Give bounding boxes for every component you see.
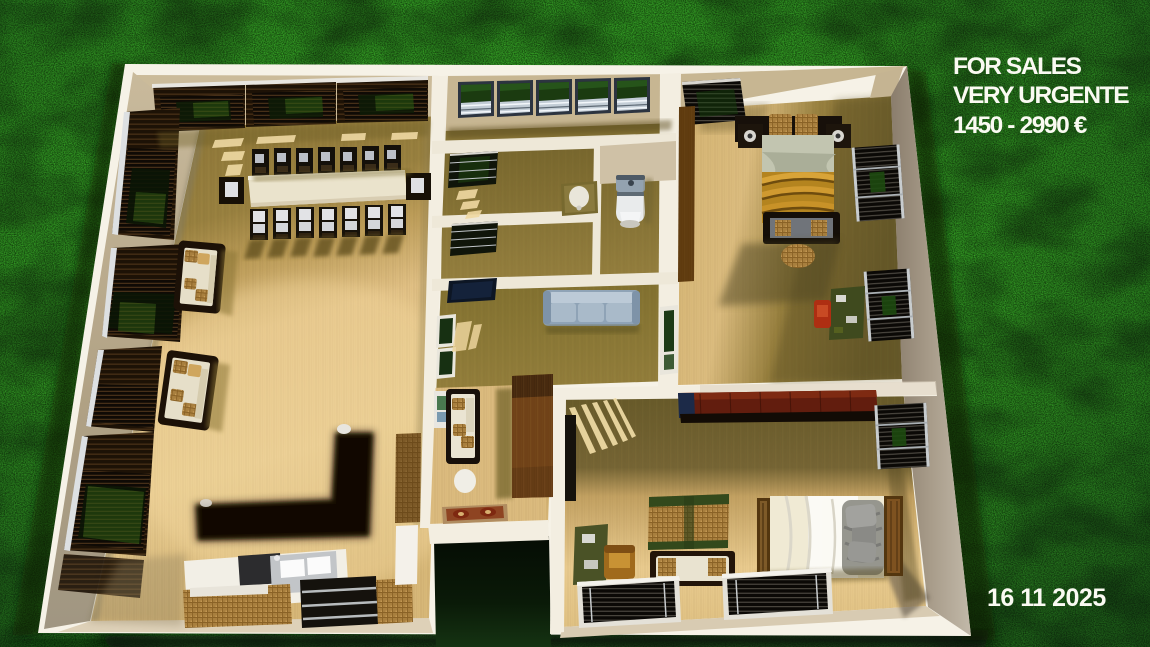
svg-text:FOR SALES: FOR SALES (953, 53, 1082, 80)
svg-text:16 11 2025: 16 11 2025 (987, 584, 1106, 612)
svg-text:VERY URGENTE: VERY URGENTE (953, 82, 1129, 109)
svg-text:1450 - 2990 €: 1450 - 2990 € (953, 112, 1088, 139)
